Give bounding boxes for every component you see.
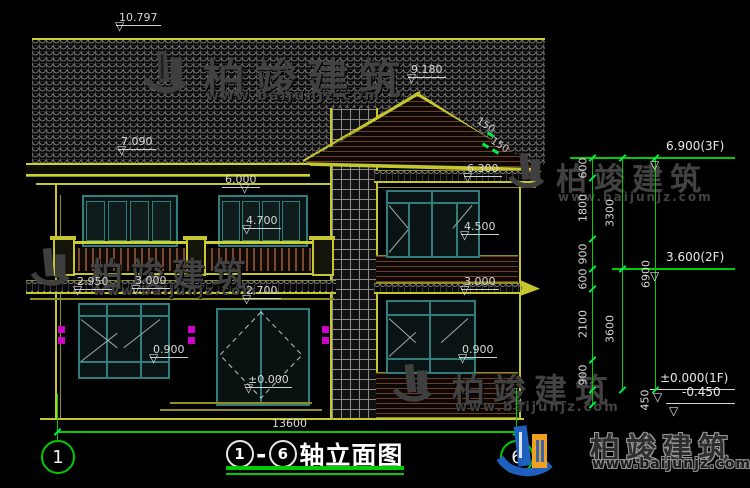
left-wall-line2	[60, 195, 61, 418]
company-logo-icon	[492, 420, 562, 484]
dim-6900: 6900	[640, 260, 653, 288]
railing-post-left-cap	[50, 236, 76, 240]
level-marker-0900-left: 0.900▽	[150, 344, 188, 358]
dim-3600: 3600	[604, 315, 617, 343]
level-marker-0900-right: 0.900▽	[459, 344, 497, 358]
title-underline-1	[226, 466, 404, 470]
dim-1800: 1800	[577, 194, 590, 222]
title-axis-left: 1	[226, 440, 254, 468]
dim-450: 450	[639, 390, 652, 411]
level-marker-7090: 7.090▽	[118, 136, 156, 150]
main-eave-line	[26, 176, 310, 177]
level-marker-6000: 6.000▽	[222, 174, 260, 188]
bottom-dim-line	[57, 431, 517, 433]
wall-lamp-1b	[58, 337, 65, 344]
level-marker-2950: 2.950▽	[74, 276, 112, 290]
entry-door	[216, 308, 310, 406]
level-marker-9180: 9.180▽	[408, 64, 446, 78]
watermark-logo-icon	[138, 44, 196, 100]
watermark-url: www.baijunjz.com	[93, 284, 258, 299]
door-step-2	[160, 409, 322, 411]
title-underline-2	[226, 473, 404, 475]
cornice-line	[36, 183, 332, 185]
railing-post-right-cap	[309, 236, 335, 240]
level-tri-minus450: ▽	[669, 404, 678, 418]
dim-3300: 3300	[604, 199, 617, 227]
watermark-logo-icon	[26, 242, 78, 292]
balcony-door-left	[82, 195, 178, 247]
watermark-logo-icon	[388, 358, 440, 408]
dim-900b: 900	[577, 365, 590, 386]
dim-2100: 2100	[577, 310, 590, 338]
wall-lamp-2a	[188, 326, 195, 333]
railing-post-mid-cap	[183, 236, 207, 240]
dim-600a: 600	[577, 158, 590, 179]
right-level-3f: 6.900(3F)	[666, 139, 724, 153]
company-logo-url: www.baijunjz.com	[592, 456, 750, 472]
elevation-drawing-canvas: 150 150	[0, 0, 750, 488]
dim-900a: 900	[577, 244, 590, 265]
wall-lamp-3a	[322, 326, 329, 333]
watermark-logo-icon	[504, 148, 552, 194]
left-wall-line	[55, 183, 57, 418]
door-step-1	[170, 402, 312, 404]
level-marker-3000-right: 3.000▽	[461, 276, 499, 290]
title-dash: -	[256, 440, 267, 469]
level-marker-4700: 4.700▽	[243, 215, 281, 229]
dim-chain-line-1	[592, 158, 593, 405]
wall-lamp-1a	[58, 326, 65, 333]
bottom-dim-text: 13600	[272, 417, 307, 430]
level-tri-1f: ▽	[653, 390, 662, 404]
level-marker-10797: 10.797▽	[116, 12, 161, 26]
wing-canopy-fascia	[374, 292, 522, 294]
wall-lamp-2b	[188, 337, 195, 344]
axis-bubble-1: 1	[41, 440, 75, 474]
window-1f-left	[78, 303, 170, 379]
dim-chain-line-2	[622, 158, 623, 390]
level-marker-0000: ±0.000▽	[245, 374, 292, 388]
wing-canopy-tip	[520, 280, 540, 296]
level-marker-4500: 4.500▽	[461, 221, 499, 235]
right-level-minus450: -0.450	[682, 385, 721, 399]
level-marker-2700: 2.700▽	[243, 285, 281, 299]
right-level-2f: 3.600(2F)	[666, 250, 724, 264]
watermark-url: www.baijunjz.com	[206, 88, 381, 104]
dim-600b: 600	[577, 269, 590, 290]
wall-lamp-3b	[322, 337, 329, 344]
level-marker-3000-left: 3.000▽	[132, 275, 170, 289]
main-eave-fascia	[26, 163, 310, 176]
right-level-1f: ±0.000(1F)	[660, 371, 728, 385]
level-tri-3f: ▽	[650, 158, 659, 172]
title-axis-right: 6	[269, 440, 297, 468]
railing-post-right	[312, 238, 334, 276]
level-marker-6300: 6.300▽	[464, 163, 502, 177]
level-line-2f	[612, 268, 735, 270]
